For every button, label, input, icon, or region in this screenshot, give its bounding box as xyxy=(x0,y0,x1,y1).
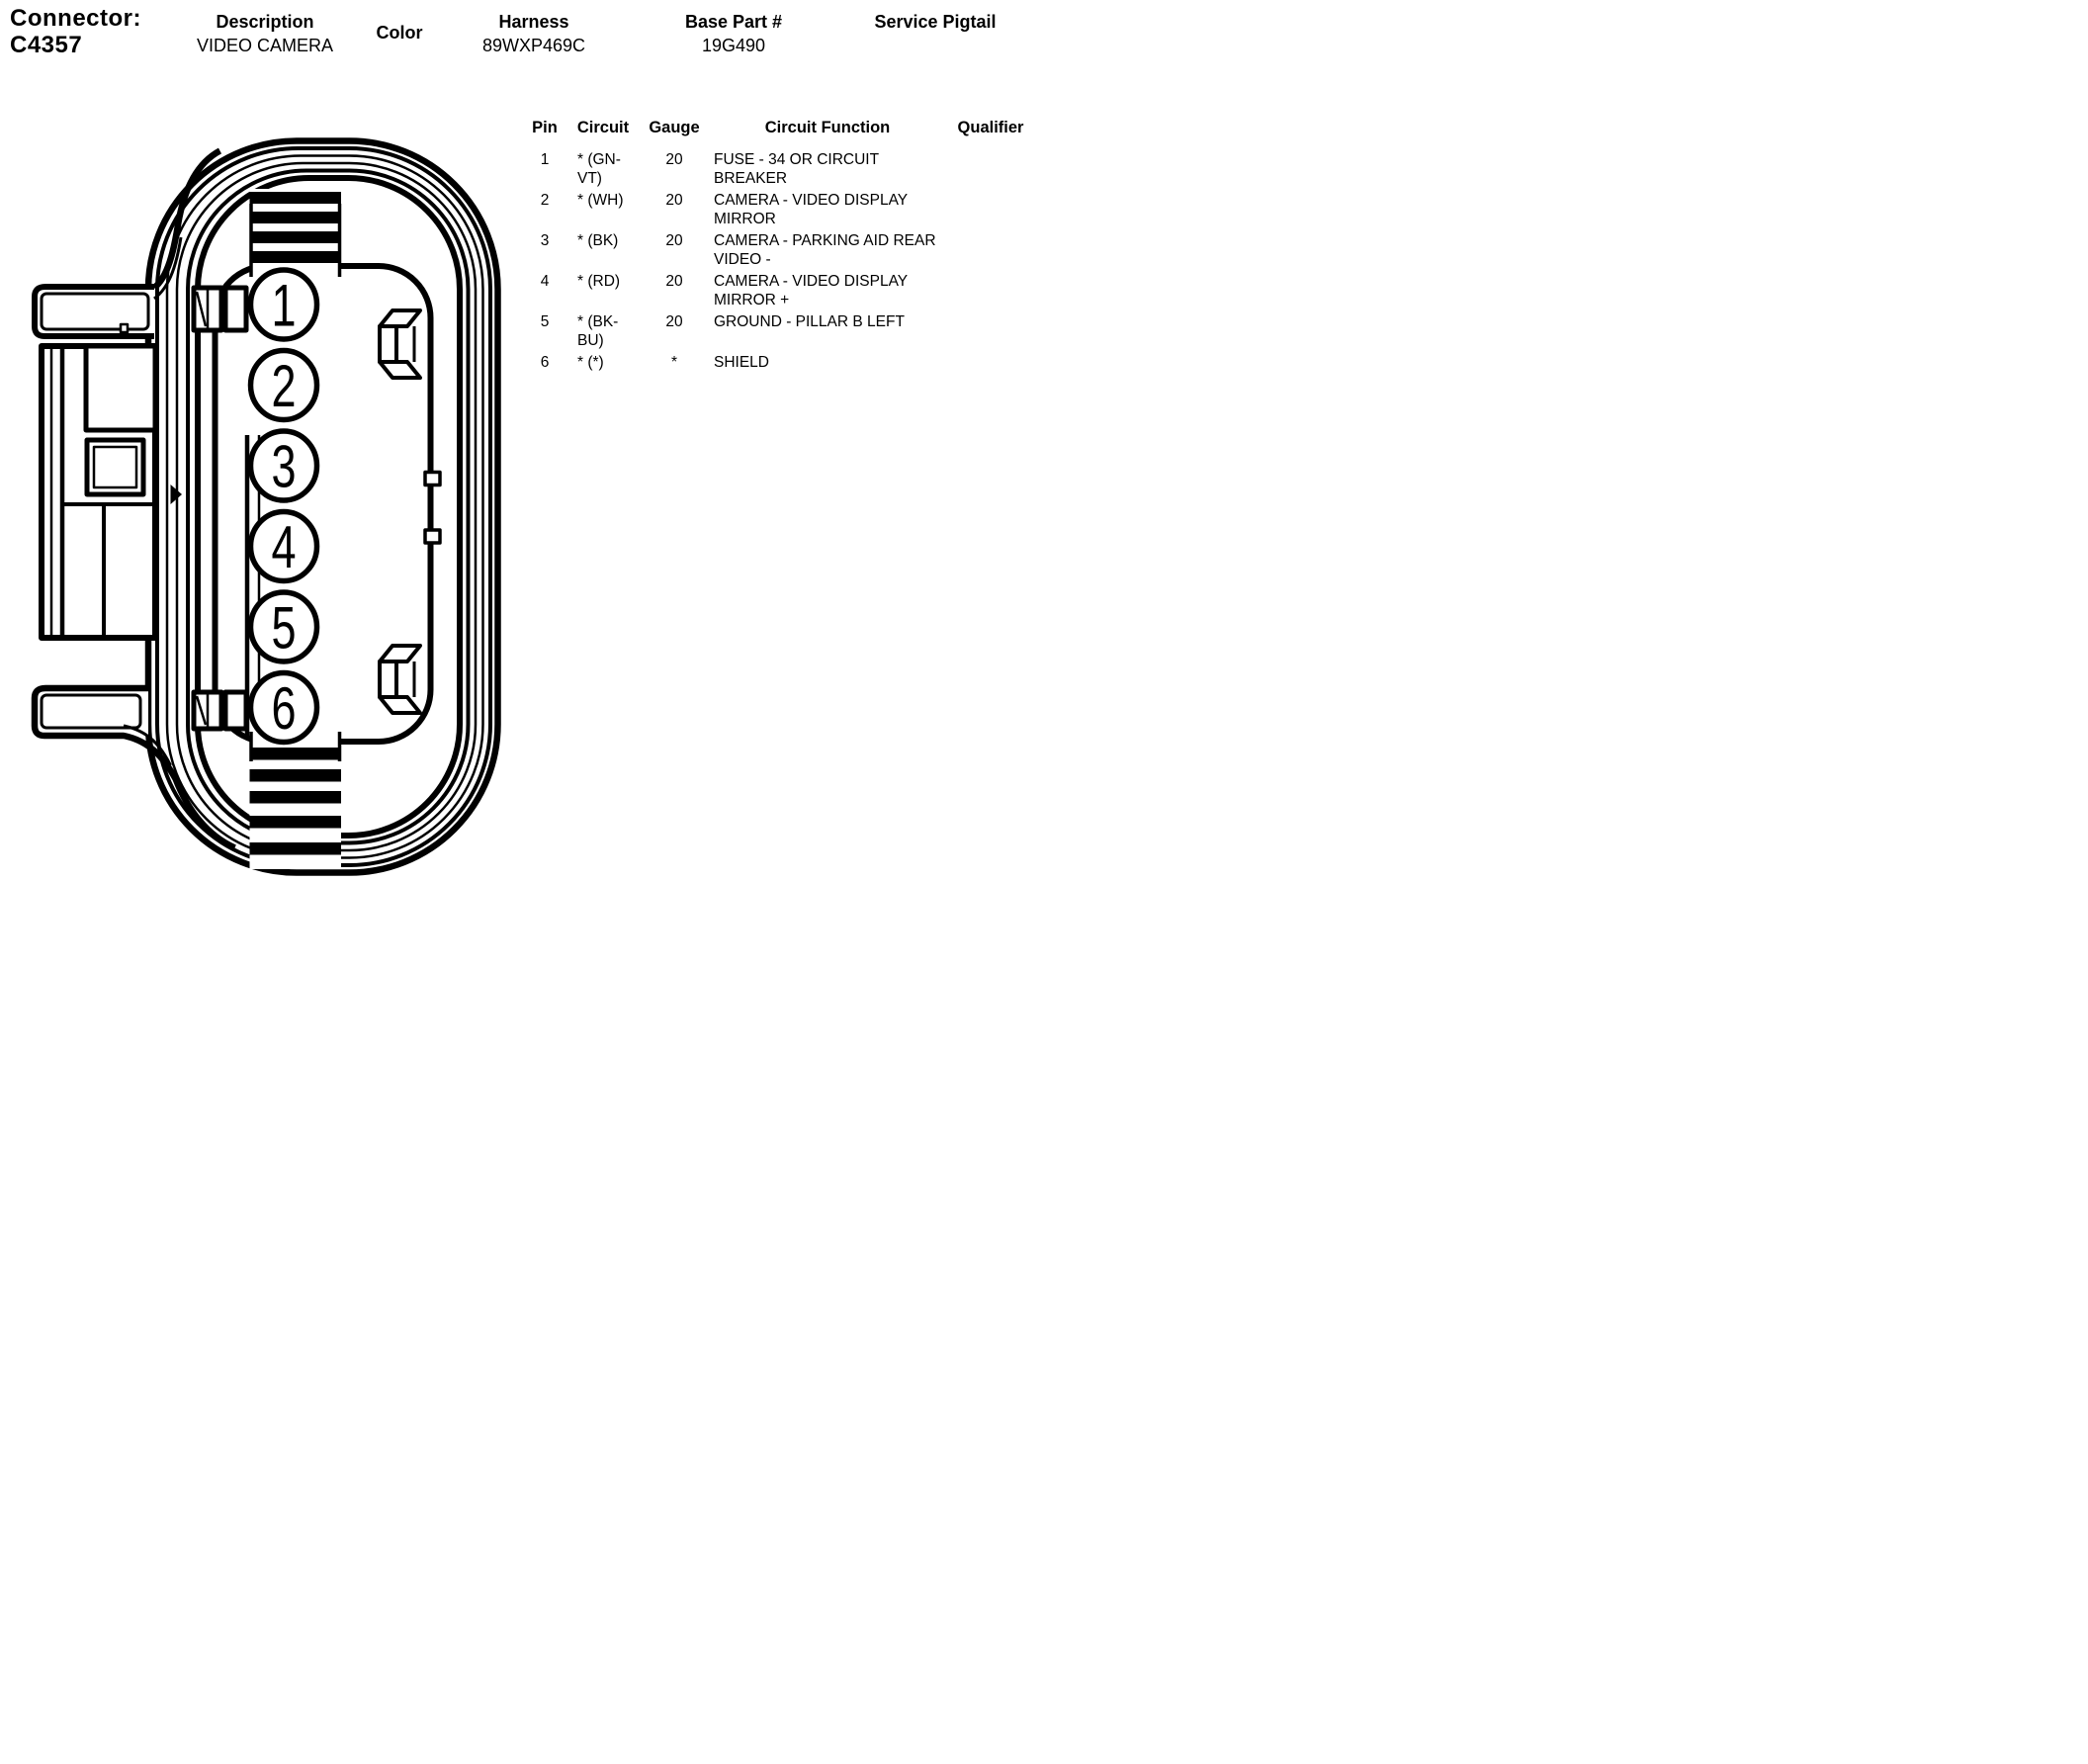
pin-cell: 5 xyxy=(530,312,560,331)
column-header-2: Gauge xyxy=(649,119,699,137)
column-header-1: Circuit xyxy=(577,119,629,137)
circuit-cell: * (GN-VT) xyxy=(577,150,629,188)
bottom-key-slot xyxy=(250,732,342,869)
pin-number: 6 xyxy=(271,676,296,743)
circuit-cell: * (RD) xyxy=(577,272,629,291)
header-label-2: Harness xyxy=(498,12,568,33)
header-value-0: VIDEO CAMERA xyxy=(197,36,333,56)
pin-cell: 4 xyxy=(530,272,560,291)
function-cell: FUSE - 34 OR CIRCUIT BREAKER xyxy=(714,150,945,188)
pin-number: 2 xyxy=(271,354,296,420)
function-cell: GROUND - PILLAR B LEFT xyxy=(714,312,945,331)
header-value-2: 89WXP469C xyxy=(482,36,585,56)
connector-face-diagram: 123456 xyxy=(15,99,514,882)
column-header-3: Circuit Function xyxy=(765,119,891,137)
function-cell: CAMERA - VIDEO DISPLAY MIRROR xyxy=(714,191,945,228)
function-cell: CAMERA - VIDEO DISPLAY MIRROR + xyxy=(714,272,945,309)
header-label-3: Base Part # xyxy=(685,12,782,33)
gauge-cell: 20 xyxy=(653,312,695,331)
index-tab-bottom xyxy=(194,692,246,729)
circuit-cell: * (BK-BU) xyxy=(577,312,629,350)
pin-cell: 2 xyxy=(530,191,560,210)
header-label-0: Description xyxy=(216,12,313,33)
column-header-0: Pin xyxy=(532,119,558,137)
gauge-cell: 20 xyxy=(653,191,695,210)
index-tab-top xyxy=(194,288,246,330)
top-key-slot xyxy=(250,189,342,277)
pin-number: 1 xyxy=(271,273,296,339)
pin-number: 3 xyxy=(271,434,296,500)
connector-pinout-sheet: Connector: C4357 DescriptionVIDEO CAMERA… xyxy=(0,0,1044,882)
gauge-cell: * xyxy=(653,353,695,372)
connector-id: C4357 xyxy=(10,32,82,58)
header-label-1: Color xyxy=(377,23,423,44)
gauge-cell: 20 xyxy=(653,272,695,291)
pin-number: 5 xyxy=(271,595,296,661)
function-cell: CAMERA - PARKING AID REAR VIDEO - xyxy=(714,231,945,269)
circuit-cell: * (WH) xyxy=(577,191,629,210)
circuit-cell: * (*) xyxy=(577,353,629,372)
pin-cell: 6 xyxy=(530,353,560,372)
pin-number: 4 xyxy=(271,515,296,581)
pin-cell: 1 xyxy=(530,150,560,169)
gauge-cell: 20 xyxy=(653,150,695,169)
header-label-4: Service Pigtail xyxy=(874,12,996,33)
column-header-4: Qualifier xyxy=(958,119,1024,137)
header-value-3: 19G490 xyxy=(702,36,765,56)
pin-cell: 3 xyxy=(530,231,560,250)
function-cell: SHIELD xyxy=(714,353,945,372)
circuit-cell: * (BK) xyxy=(577,231,629,250)
gauge-cell: 20 xyxy=(653,231,695,250)
connector-label: Connector: xyxy=(10,5,141,32)
